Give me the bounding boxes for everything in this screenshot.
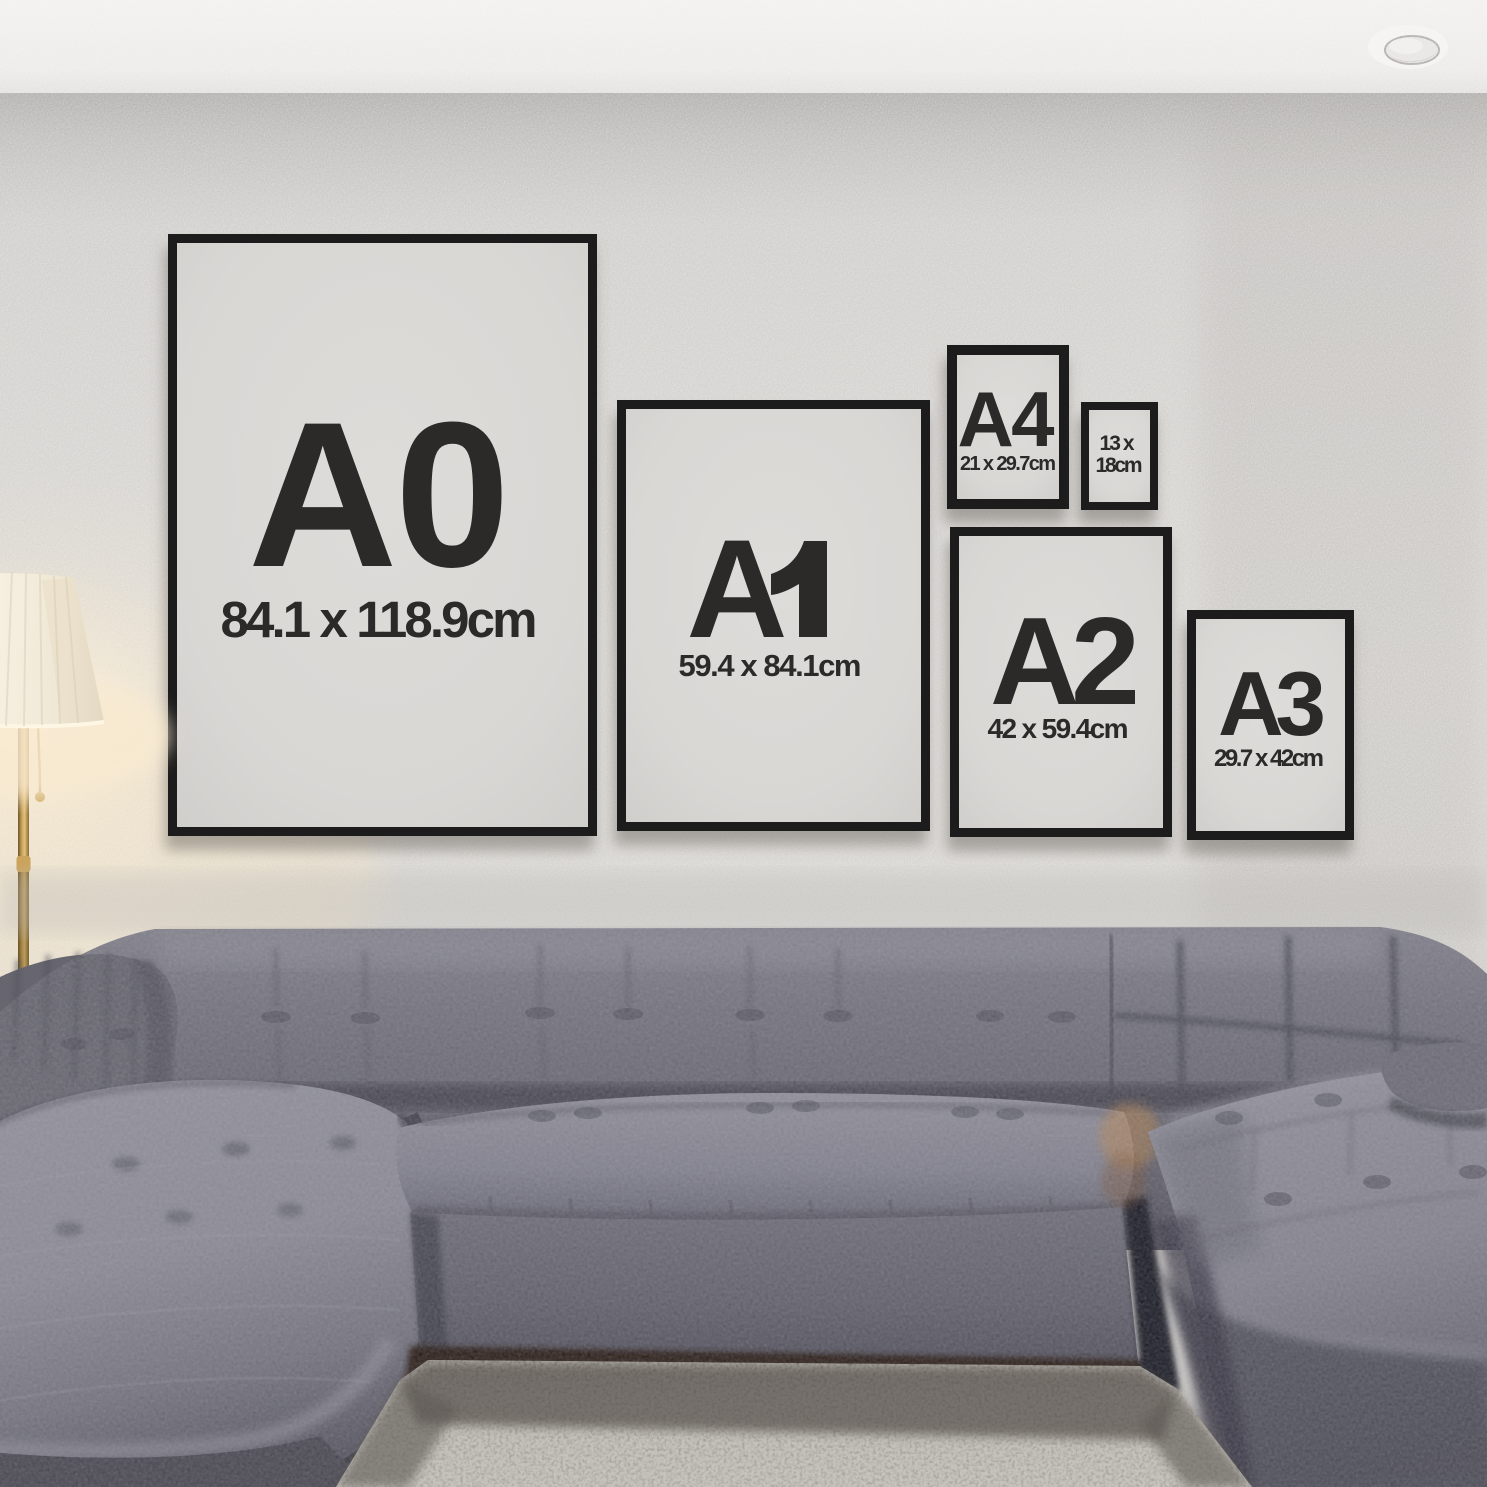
svg-text:21 x 29.7cm: 21 x 29.7cm bbox=[960, 453, 1056, 475]
svg-text:29.7 x 42cm: 29.7 x 42cm bbox=[1214, 745, 1324, 772]
svg-text:A3: A3 bbox=[1218, 654, 1326, 755]
svg-text:18cm: 18cm bbox=[1096, 454, 1143, 477]
svg-text:A4: A4 bbox=[958, 375, 1055, 463]
svg-text:A2: A2 bbox=[990, 593, 1140, 731]
svg-text:13 x: 13 x bbox=[1100, 432, 1135, 455]
svg-text:42 x 59.4cm: 42 x 59.4cm bbox=[988, 713, 1129, 744]
svg-text:59.4 x 84.1cm: 59.4 x 84.1cm bbox=[679, 648, 862, 683]
svg-text:84.1 x 118.9cm: 84.1 x 118.9cm bbox=[221, 591, 538, 648]
svg-text:A0: A0 bbox=[248, 379, 510, 610]
